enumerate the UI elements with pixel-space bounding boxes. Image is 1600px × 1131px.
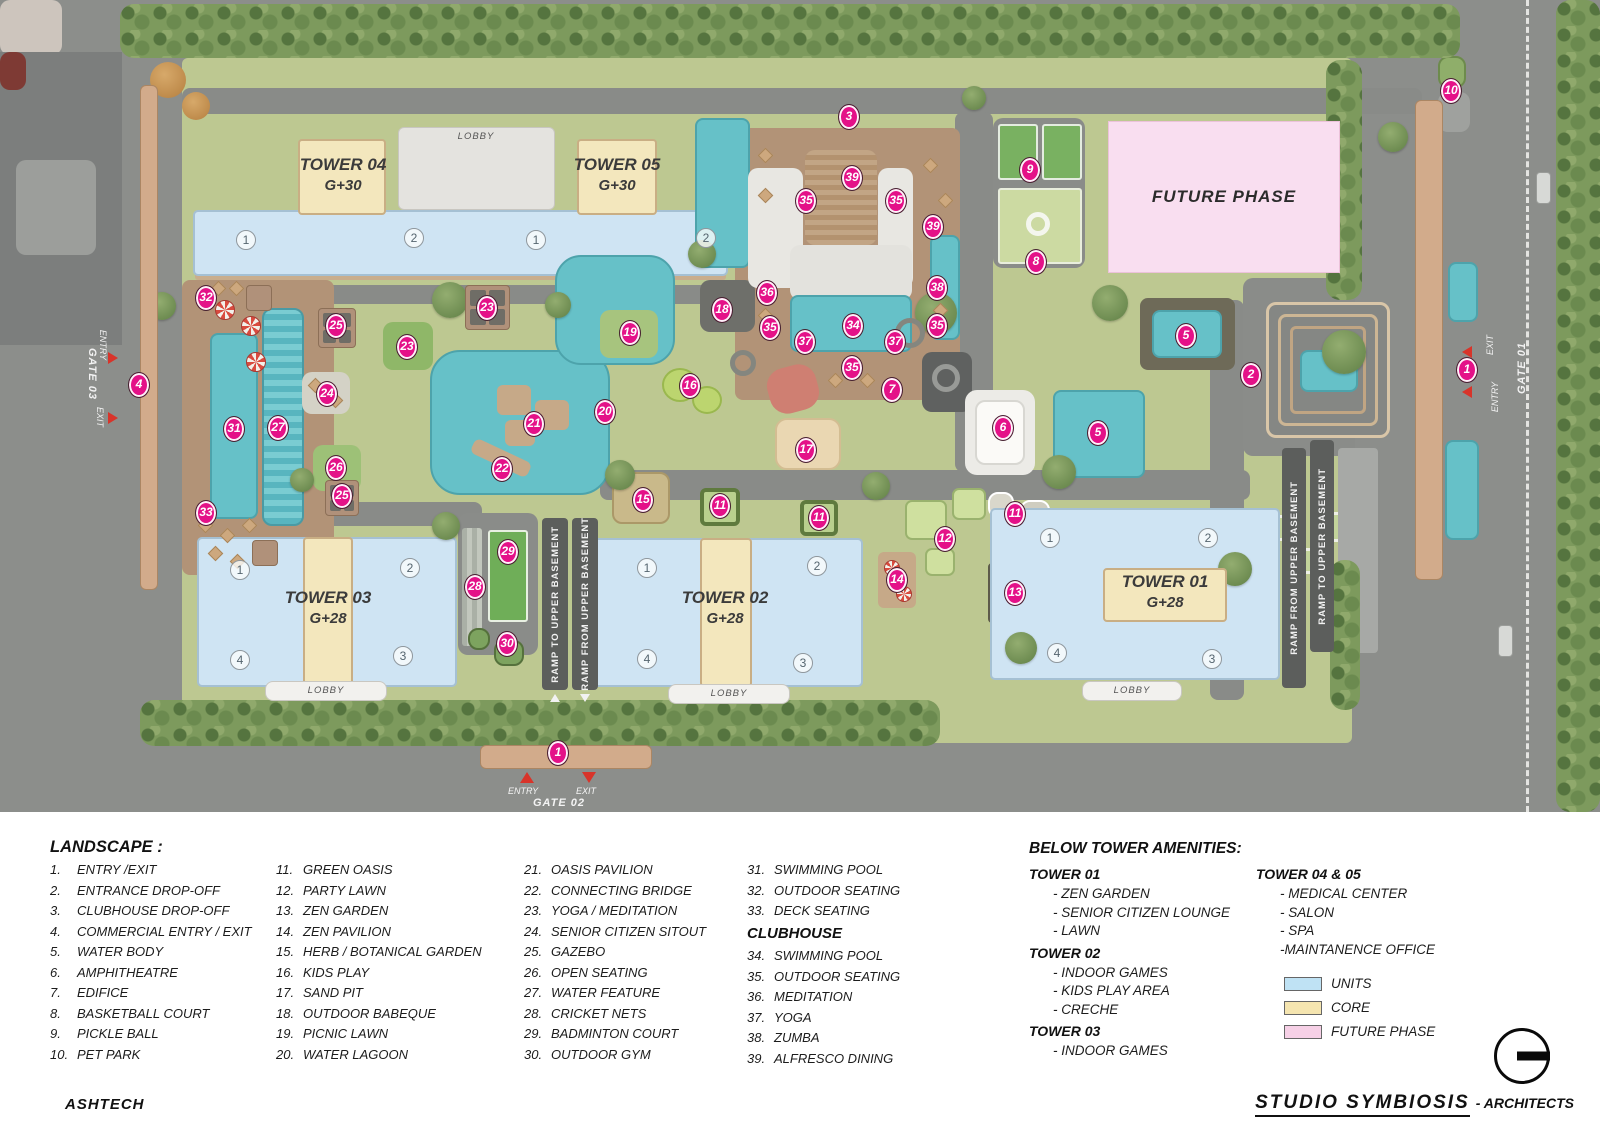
pool-shape: [1445, 440, 1479, 540]
map-marker-5: 5: [1087, 420, 1109, 446]
tree-icon: [605, 460, 635, 490]
tower-group-name: TOWER 03: [1029, 1023, 1259, 1039]
decor-shape: SENIOR CITIZEN SITOUT: [551, 924, 706, 939]
map-marker-35: 35: [841, 355, 863, 381]
legend-item: 13.ZEN GARDEN: [276, 903, 482, 918]
unit-number: 3: [393, 646, 413, 666]
tower-group-item: - INDOOR GAMES: [1029, 964, 1259, 983]
future-phase-block: FUTURE PHASE: [1108, 121, 1340, 273]
rtri-shape: [520, 772, 534, 783]
umbrella-icon: [215, 300, 235, 320]
legend-item: 35.OUTDOOR SEATING: [747, 969, 900, 984]
rtri-shape: [108, 412, 118, 424]
decor-shape: CONNECTING BRIDGE: [551, 883, 692, 898]
unit-number: 2: [400, 558, 420, 578]
gate01-label: GATE 01: [1516, 342, 1528, 394]
gate-01-wall: [1415, 100, 1443, 580]
num-shape: 36.: [747, 989, 774, 1004]
map-marker-18: 18: [711, 297, 733, 323]
party-lawn: [925, 548, 955, 576]
tower-group-name: TOWER 01: [1029, 866, 1259, 882]
map-marker-25: 25: [331, 483, 353, 509]
master-plan-render: FUTURE PHASE LOBBY TOWER 04 G+30 TOWER 0…: [0, 0, 1600, 812]
map-marker-12: 12: [934, 526, 956, 552]
decor-shape: WATER FEATURE: [551, 985, 660, 1000]
num-shape: 17.: [276, 985, 303, 1000]
rtri-shape: [108, 352, 118, 364]
tower-group-item: - KIDS PLAY AREA: [1029, 982, 1259, 1001]
tower-group-item: - LAWN: [1029, 922, 1259, 941]
legend-item: 31.SWIMMING POOL: [747, 862, 900, 877]
map-marker-10: 10: [1440, 78, 1462, 104]
map-marker-32: 32: [195, 285, 217, 311]
north-compass-icon: [1494, 1028, 1550, 1084]
gate01-entry-label: ENTRY: [1490, 382, 1500, 412]
map-marker-30: 30: [496, 631, 518, 657]
legend-item: 34.SWIMMING POOL: [747, 948, 900, 963]
map-marker-14: 14: [886, 567, 908, 593]
tree-icon: [962, 86, 986, 110]
tree-icon: [1322, 330, 1366, 374]
umbrella-icon: [246, 352, 266, 372]
num-shape: 25.: [524, 944, 551, 959]
decor-shape: HERB / BOTANICAL GARDEN: [303, 944, 482, 959]
cabana: [252, 540, 278, 566]
outdoor-gym: [468, 628, 490, 650]
legend-item: 17.SAND PIT: [276, 985, 482, 1000]
num-shape: 28.: [524, 1006, 551, 1021]
decor-shape: G+28: [309, 610, 346, 627]
rtri-shape: [582, 772, 596, 783]
num-shape: 4.: [50, 924, 77, 939]
map-marker-3: 3: [838, 104, 860, 130]
map-marker-35: 35: [759, 315, 781, 341]
map-marker-20: 20: [594, 399, 616, 425]
decor-shape: OUTDOOR SEATING: [774, 883, 900, 898]
decor-shape: YOGA: [774, 1010, 812, 1025]
map-marker-27: 27: [267, 415, 289, 441]
num-shape: 30.: [524, 1047, 551, 1062]
legend-item: 12.PARTY LAWN: [276, 883, 482, 898]
map-marker-25: 25: [325, 313, 347, 339]
tower-group-item: - SALON: [1256, 904, 1486, 923]
legend-item: 2.ENTRANCE DROP-OFF: [50, 883, 252, 898]
num-shape: 12.: [276, 883, 303, 898]
decor-shape: PET PARK: [77, 1047, 140, 1062]
decor-shape: PICKLE BALL: [77, 1026, 159, 1041]
decor-shape: GAZEBO: [551, 944, 605, 959]
legend-column-2: 11.GREEN OASIS12.PARTY LAWN13.ZEN GARDEN…: [276, 862, 482, 1067]
lobby-label: LOBBY: [668, 684, 790, 704]
gate01-exit-label: EXIT: [1485, 335, 1495, 355]
num-shape: 35.: [747, 969, 774, 984]
unit-number: 2: [1198, 528, 1218, 548]
gate02-entry-label: ENTRY: [508, 786, 538, 796]
decor-shape: GREEN OASIS: [303, 862, 393, 877]
tower-04-label: TOWER 04 G+30: [288, 155, 398, 196]
num-shape: 7.: [50, 985, 77, 1000]
unit-number: 4: [230, 650, 250, 670]
road-center-line: [1526, 0, 1529, 812]
num-shape: 14.: [276, 924, 303, 939]
tree-icon: [862, 472, 890, 500]
tower-group-item: - SENIOR CITIZEN LOUNGE: [1029, 904, 1259, 923]
num-shape: 20.: [276, 1047, 303, 1062]
num-shape: 39.: [747, 1051, 774, 1066]
legend-item: 18.OUTDOOR BABEQUE: [276, 1006, 482, 1021]
map-marker-36: 36: [756, 280, 778, 306]
legend-column-1: 1.ENTRY /EXIT2.ENTRANCE DROP-OFF3.CLUBHO…: [50, 862, 252, 1067]
num-shape: 22.: [524, 883, 551, 898]
gate03-label: GATE 03: [86, 348, 98, 400]
studio-symbiosis-logo: STUDIO SYMBIOSIS: [1255, 1092, 1470, 1117]
legend-item: 16.KIDS PLAY: [276, 965, 482, 980]
legend-item: 37.YOGA: [747, 1010, 900, 1025]
car: [1498, 625, 1513, 657]
ramptxt-shape: RAMP FROM UPPER BASEMENT: [1289, 481, 1300, 655]
num-shape: 2.: [50, 883, 77, 898]
unit-number: 4: [637, 649, 657, 669]
num-shape: 3.: [50, 903, 77, 918]
map-marker-23: 23: [476, 295, 498, 321]
num-shape: 26.: [524, 965, 551, 980]
map-marker-8: 8: [1025, 249, 1047, 275]
unit-number: 1: [1040, 528, 1060, 548]
road-shape: [600, 470, 1250, 500]
map-marker-2: 2: [1240, 362, 1262, 388]
num-shape: 6.: [50, 965, 77, 980]
map-marker-21: 21: [523, 411, 545, 437]
num-shape: 23.: [524, 903, 551, 918]
color-key-row: CORE: [1284, 1000, 1435, 1015]
tower-group-item: - ZEN GARDEN: [1029, 885, 1259, 904]
legend-item: 3.CLUBHOUSE DROP-OFF: [50, 903, 252, 918]
below-tower-groups: TOWER 01- ZEN GARDEN- SENIOR CITIZEN LOU…: [1029, 862, 1259, 1061]
tree-icon: [432, 282, 468, 318]
legend-item: 29.BADMINTON COURT: [524, 1026, 706, 1041]
num-shape: 8.: [50, 1006, 77, 1021]
decor-shape: G+30: [324, 177, 361, 194]
map-marker-39: 39: [841, 165, 863, 191]
unit-number: 2: [807, 556, 827, 576]
decor-shape: MEDITATION: [774, 989, 852, 1004]
num-shape: 38.: [747, 1030, 774, 1045]
decor-shape: YOGA / MEDITATION: [551, 903, 677, 918]
map-marker-34: 34: [842, 313, 864, 339]
map-marker-29: 29: [497, 539, 519, 565]
ramp-to-upper-basement: RAMP TO UPPER BASEMENT: [542, 518, 568, 690]
right-verge-trees: [1556, 0, 1600, 812]
rtri-shape: [550, 694, 560, 702]
map-marker-26: 26: [325, 455, 347, 481]
legend-item: 4.COMMERCIAL ENTRY / EXIT: [50, 924, 252, 939]
legend-item: 33.DECK SEATING: [747, 903, 900, 918]
num-shape: 37.: [747, 1010, 774, 1025]
num-shape: 33.: [747, 903, 774, 918]
decor-shape: BADMINTON COURT: [551, 1026, 678, 1041]
tower-group-item: - INDOOR GAMES: [1029, 1042, 1259, 1061]
map-marker-35: 35: [885, 188, 907, 214]
map-marker-37: 37: [794, 329, 816, 355]
num-shape: 31.: [747, 862, 774, 877]
unit-number: 1: [526, 230, 546, 250]
lobby-label: LOBBY: [420, 128, 532, 146]
num-shape: 11.: [276, 862, 303, 877]
map-marker-1: 1: [547, 740, 569, 766]
legend-title: LANDSCAPE :: [50, 838, 163, 857]
road-shape: [182, 88, 1422, 114]
legend-item: 8.BASKETBALL COURT: [50, 1006, 252, 1021]
unit-number: 1: [637, 558, 657, 578]
decor-shape: G+28: [1146, 594, 1183, 611]
decor-shape: TOWER 05: [574, 155, 661, 174]
ramptxt-shape: RAMP TO UPPER BASEMENT: [550, 526, 561, 683]
future-phase-label: FUTURE PHASE: [1152, 187, 1296, 207]
map-marker-11: 11: [709, 493, 731, 519]
unit-number: 1: [230, 560, 250, 580]
num-shape: 16.: [276, 965, 303, 980]
gate03-entry-label: ENTRY: [98, 330, 108, 360]
legend-item: 24.SENIOR CITIZEN SITOUT: [524, 924, 706, 939]
gate03-exit-label: EXIT: [95, 407, 105, 427]
color-key-swatch: [1284, 977, 1322, 991]
map-marker-1: 1: [1456, 357, 1478, 383]
map-marker-19: 19: [619, 320, 641, 346]
adjacent-building: [0, 0, 62, 55]
legend-item: 22.CONNECTING BRIDGE: [524, 883, 706, 898]
map-marker-33: 33: [195, 500, 217, 526]
map-marker-24: 24: [316, 381, 338, 407]
map-marker-9: 9: [1019, 157, 1041, 183]
developer-logo: ASHTECH: [65, 1096, 145, 1113]
legend-item: 26.OPEN SEATING: [524, 965, 706, 980]
decor-shape: G+30: [598, 177, 635, 194]
num-shape: 19.: [276, 1026, 303, 1041]
bar-shape: [1517, 1052, 1550, 1061]
decor-shape: ENTRANCE DROP-OFF: [77, 883, 220, 898]
map-marker-38: 38: [926, 275, 948, 301]
tower-01-label: TOWER 01 G+28: [1090, 572, 1240, 613]
num-shape: 10.: [50, 1047, 77, 1062]
umbrella-icon: [241, 316, 261, 336]
num-shape: 34.: [747, 948, 774, 963]
map-marker-22: 22: [491, 456, 513, 482]
map-marker-16: 16: [679, 373, 701, 399]
unit-number: 3: [1202, 649, 1222, 669]
rtri-shape: [580, 694, 590, 702]
unit-number: 1: [236, 230, 256, 250]
legend-item: 7.EDIFICE: [50, 985, 252, 1000]
ring-shape: [1026, 212, 1050, 236]
tower-group-name: TOWER 04 & 05: [1256, 866, 1486, 882]
cabana: [246, 285, 272, 311]
ramptxt-shape: RAMP TO UPPER BASEMENT: [1317, 468, 1328, 625]
decor-shape: G+28: [706, 610, 743, 627]
architect-logo: STUDIO SYMBIOSIS - ARCHITECTS: [1255, 1092, 1574, 1117]
map-marker-6: 6: [992, 415, 1014, 441]
decor-shape: SAND PIT: [303, 985, 363, 1000]
legend-item: 21.OASIS PAVILION: [524, 862, 706, 877]
decor-shape: CRICKET NETS: [551, 1006, 646, 1021]
decor-shape: TOWER 04: [300, 155, 387, 174]
map-marker-13: 13: [1004, 580, 1026, 606]
map-marker-35: 35: [795, 188, 817, 214]
legend-item: 36.MEDITATION: [747, 989, 900, 1004]
color-key: UNITSCOREFUTURE PHASE: [1284, 976, 1435, 1048]
tower-05-label: TOWER 05 G+30: [562, 155, 672, 196]
pickle-ball-court: [1042, 124, 1082, 180]
decor-shape: SWIMMING POOL: [774, 948, 883, 963]
decor-shape: BASKETBALL COURT: [77, 1006, 209, 1021]
ramp-from-upper-basement: RAMP FROM UPPER BASEMENT: [1282, 448, 1306, 688]
color-key-label: UNITS: [1331, 976, 1372, 991]
tower-group-item: - CRECHE: [1029, 1001, 1259, 1020]
decor-shape: ENTRY /EXIT: [77, 862, 156, 877]
num-shape: 24.: [524, 924, 551, 939]
architects-suffix: - ARCHITECTS: [1476, 1095, 1574, 1111]
decor-shape: ZEN GARDEN: [303, 903, 388, 918]
decor-shape: CLUBHOUSE DROP-OFF: [77, 903, 229, 918]
ramp-from-upper-basement: RAMP FROM UPPER BASEMENT: [572, 518, 598, 690]
tower-group-item: - MEDICAL CENTER: [1256, 885, 1486, 904]
decor-shape: TOWER 03: [285, 588, 372, 607]
tower-group-item: - SPA: [1256, 922, 1486, 941]
decor-shape: WATER LAGOON: [303, 1047, 408, 1062]
decor-shape: EDIFICE: [77, 985, 128, 1000]
lobby-label: LOBBY: [265, 681, 387, 701]
tower-03-label: TOWER 03 G+28: [253, 588, 403, 629]
legend-item: 5.WATER BODY: [50, 944, 252, 959]
color-key-row: UNITS: [1284, 976, 1435, 991]
legend-item: 6.AMPHITHEATRE: [50, 965, 252, 980]
color-key-label: FUTURE PHASE: [1331, 1024, 1435, 1039]
legend-item: 39.ALFRESCO DINING: [747, 1051, 900, 1066]
trees-shape: [1330, 560, 1360, 710]
map-marker-17: 17: [795, 437, 817, 463]
tower-group-name: TOWER 02: [1029, 945, 1259, 961]
decor-shape: DECK SEATING: [774, 903, 870, 918]
color-key-row: FUTURE PHASE: [1284, 1024, 1435, 1039]
map-marker-37: 37: [884, 329, 906, 355]
num-shape: 5.: [50, 944, 77, 959]
legend-item: 9.PICKLE BALL: [50, 1026, 252, 1041]
gate02-label: GATE 02: [533, 797, 585, 809]
ramp-to-upper-basement: RAMP TO UPPER BASEMENT: [1310, 440, 1334, 652]
decor-shape: ALFRESCO DINING: [774, 1051, 893, 1066]
decor-shape: OUTDOOR SEATING: [774, 969, 900, 984]
legend-item: 11.GREEN OASIS: [276, 862, 482, 877]
party-lawn: [952, 488, 986, 520]
unit-number: 2: [696, 228, 716, 248]
tower-02-label: TOWER 02 G+28: [650, 588, 800, 629]
num-shape: 1.: [50, 862, 77, 877]
tree-icon: [290, 468, 314, 492]
tree-icon: [1042, 455, 1076, 489]
unit-number: 4: [1047, 643, 1067, 663]
num-shape: 18.: [276, 1006, 303, 1021]
map-marker-15: 15: [632, 487, 654, 513]
tree-icon: [1092, 285, 1128, 321]
legend-item: 38.ZUMBA: [747, 1030, 900, 1045]
legend-item: 20.WATER LAGOON: [276, 1047, 482, 1062]
map-marker-35: 35: [926, 313, 948, 339]
tree-belt-bottom: [140, 700, 940, 746]
decor-shape: ZUMBA: [774, 1030, 820, 1045]
num-shape: 15.: [276, 944, 303, 959]
car: [1536, 172, 1551, 204]
unit-number: 3: [793, 653, 813, 673]
gate-03-wall: [140, 85, 158, 590]
legend-item: 15.HERB / BOTANICAL GARDEN: [276, 944, 482, 959]
decor-shape: OUTDOOR GYM: [551, 1047, 651, 1062]
tree-icon: [1378, 122, 1408, 152]
num-shape: 32.: [747, 883, 774, 898]
ramptxt-shape: RAMP FROM UPPER BASEMENT: [580, 517, 591, 691]
decor-shape: PARTY LAWN: [303, 883, 386, 898]
clubhouse-roof: [790, 245, 912, 300]
decor-shape: PICNIC LAWN: [303, 1026, 388, 1041]
decor-shape: COMMERCIAL ENTRY / EXIT: [77, 924, 252, 939]
gate02-exit-label: EXIT: [576, 786, 596, 796]
decor-shape: TOWER 02: [682, 588, 769, 607]
adjacent-building: [16, 160, 96, 255]
map-marker-31: 31: [223, 416, 245, 442]
tree-icon: [432, 512, 460, 540]
ring-shape: [932, 364, 960, 392]
legend-item: 25.GAZEBO: [524, 944, 706, 959]
legend-column-4: 31.SWIMMING POOL32.OUTDOOR SEATING33.DEC…: [747, 862, 900, 924]
unit-number: 2: [404, 228, 424, 248]
map-marker-7: 7: [881, 377, 903, 403]
tower-group-item: -MAINTANENCE OFFICE: [1256, 941, 1486, 960]
decor-shape: OUTDOOR BABEQUE: [303, 1006, 436, 1021]
tree-icon: [182, 92, 210, 120]
legend-clubhouse-list: 34.SWIMMING POOL35.OUTDOOR SEATING36.MED…: [747, 948, 900, 1071]
legend-item: 19.PICNIC LAWN: [276, 1026, 482, 1041]
num-shape: 13.: [276, 903, 303, 918]
decor-shape: TOWER 01: [1122, 572, 1209, 591]
below-tower-title: BELOW TOWER AMENITIES:: [1029, 840, 1242, 858]
decor-shape: OPEN SEATING: [551, 965, 648, 980]
legend-item: 10.PET PARK: [50, 1047, 252, 1062]
num-shape: 29.: [524, 1026, 551, 1041]
legend-item: 32.OUTDOOR SEATING: [747, 883, 900, 898]
rtri-shape: [1462, 386, 1472, 398]
map-marker-11: 11: [808, 505, 830, 531]
legend-item: 30.OUTDOOR GYM: [524, 1047, 706, 1062]
color-key-swatch: [1284, 1025, 1322, 1039]
tree-icon: [1005, 632, 1037, 664]
tree-belt-top: [120, 4, 1460, 58]
decor-shape: OASIS PAVILION: [551, 862, 653, 877]
map-marker-28: 28: [464, 574, 486, 600]
lobby-label: LOBBY: [1082, 681, 1182, 701]
map-marker-11: 11: [1004, 501, 1026, 527]
clubhouse-title: CLUBHOUSE: [747, 925, 842, 942]
map-marker-4: 4: [128, 372, 150, 398]
ring-shape: [730, 350, 756, 376]
adjacent-building: [0, 52, 26, 90]
decor-shape: WATER BODY: [77, 944, 163, 959]
num-shape: 9.: [50, 1026, 77, 1041]
num-shape: 21.: [524, 862, 551, 877]
decor-shape: ZEN PAVILION: [303, 924, 391, 939]
map-marker-39: 39: [922, 214, 944, 240]
color-key-label: CORE: [1331, 1000, 1370, 1015]
legend-item: 28.CRICKET NETS: [524, 1006, 706, 1021]
decor-shape: AMPHITHEATRE: [77, 965, 178, 980]
num-shape: 27.: [524, 985, 551, 1000]
